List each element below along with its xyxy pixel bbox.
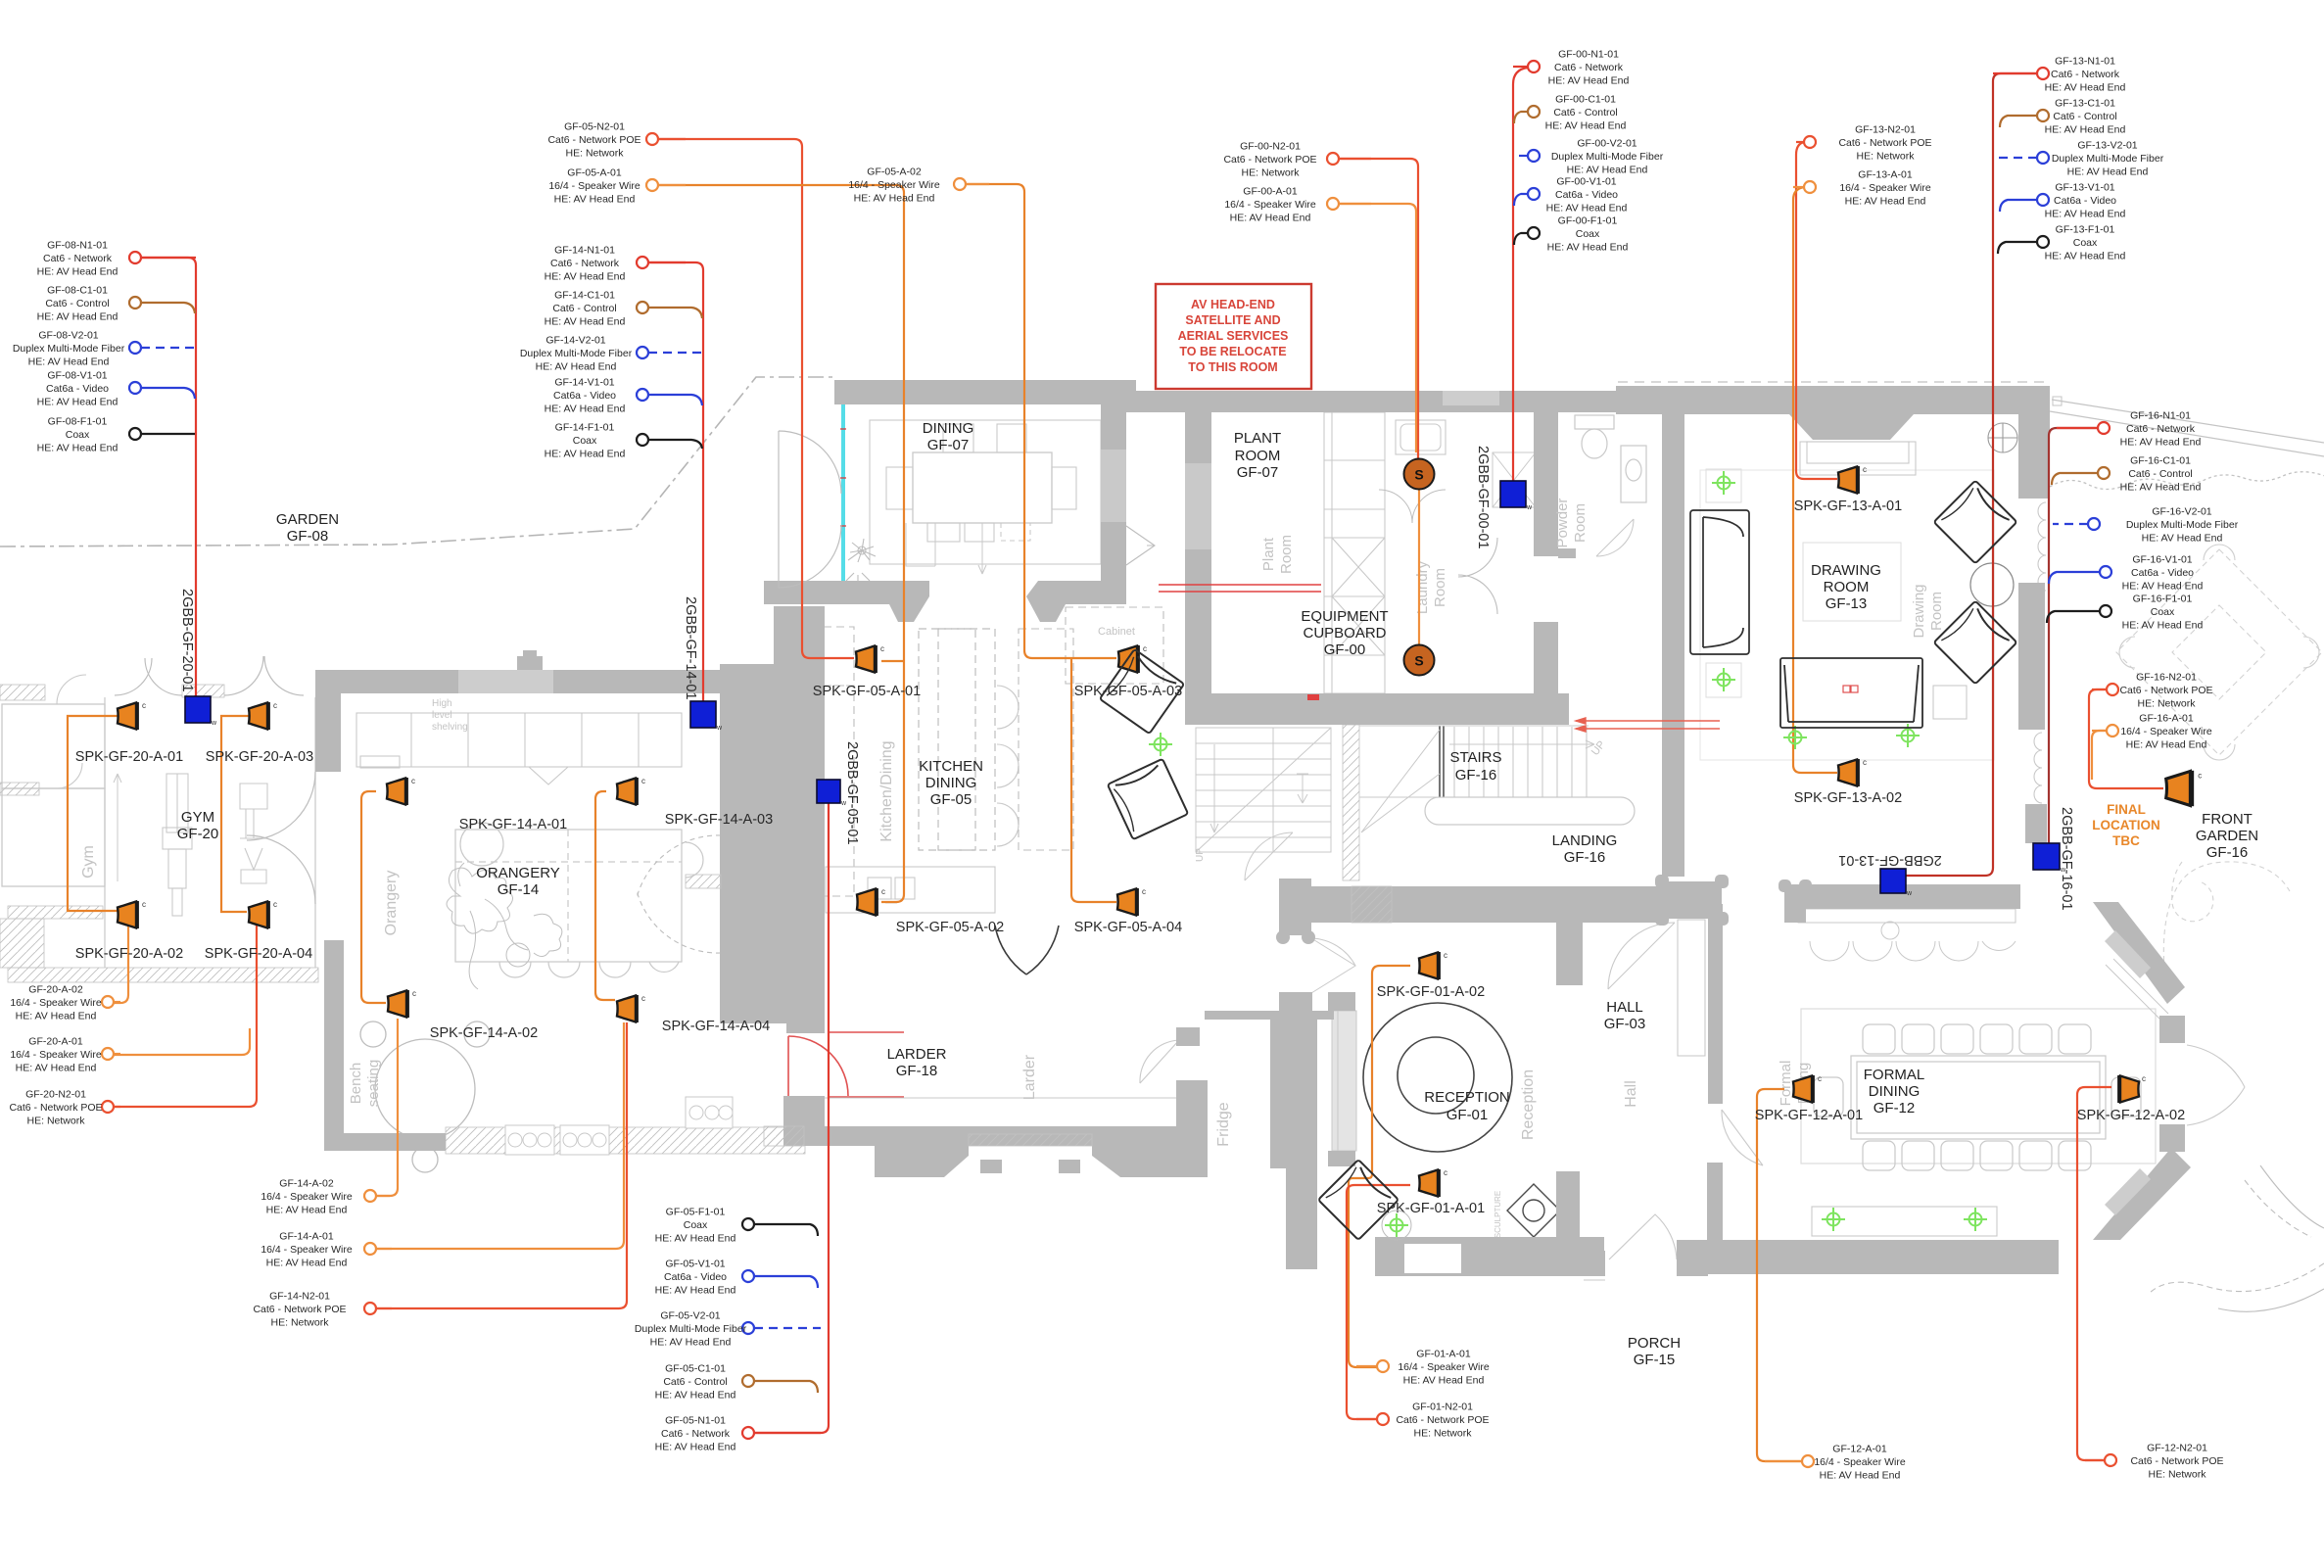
svg-text:GF-16: GF-16 bbox=[1564, 849, 1606, 866]
svg-text:16/4 - Speaker Wire: 16/4 - Speaker Wire bbox=[261, 1191, 353, 1203]
svg-text:HE: AV Head End: HE: AV Head End bbox=[37, 397, 119, 408]
svg-text:Cat6 - Network: Cat6 - Network bbox=[661, 1428, 731, 1440]
svg-text:Laundry: Laundry bbox=[1414, 560, 1431, 614]
svg-text:HE: Network: HE: Network bbox=[1857, 151, 1916, 163]
svg-text:HE: AV Head End: HE: AV Head End bbox=[655, 1442, 736, 1453]
svg-text:Formal: Formal bbox=[1778, 1061, 1794, 1107]
svg-text:level: level bbox=[432, 710, 452, 721]
svg-text:HE: Network: HE: Network bbox=[1414, 1428, 1473, 1440]
svg-text:SPK-GF-05-A-02: SPK-GF-05-A-02 bbox=[896, 920, 1004, 935]
svg-text:SPK-GF-12-A-01: SPK-GF-12-A-01 bbox=[1755, 1108, 1863, 1123]
svg-text:Duplex Multi-Mode Fiber: Duplex Multi-Mode Fiber bbox=[2052, 153, 2164, 165]
svg-text:GF-13-V1-01: GF-13-V1-01 bbox=[2055, 182, 2114, 194]
svg-text:2GBB-GF-14-01: 2GBB-GF-14-01 bbox=[683, 596, 698, 700]
svg-text:Coax: Coax bbox=[573, 435, 597, 447]
svg-text:GF-01: GF-01 bbox=[1447, 1107, 1489, 1123]
svg-text:2GBB-GF-05-01: 2GBB-GF-05-01 bbox=[844, 741, 860, 845]
svg-text:GF-03: GF-03 bbox=[1604, 1016, 1646, 1032]
svg-text:GF-16-F1-01: GF-16-F1-01 bbox=[2133, 594, 2193, 605]
svg-text:HE: Network: HE: Network bbox=[566, 148, 625, 160]
svg-text:Cat6a - Video: Cat6a - Video bbox=[1555, 189, 1618, 201]
svg-text:c: c bbox=[881, 887, 885, 896]
svg-text:ROOM: ROOM bbox=[1235, 448, 1281, 464]
svg-text:Coax: Coax bbox=[1576, 228, 1600, 240]
svg-text:SCULPTURE: SCULPTURE bbox=[1494, 1191, 1502, 1238]
svg-text:c: c bbox=[1142, 887, 1146, 896]
svg-text:GF-00-V1-01: GF-00-V1-01 bbox=[1556, 176, 1616, 188]
svg-text:FORMAL: FORMAL bbox=[1864, 1067, 1925, 1083]
svg-text:Cat6 - Network POE: Cat6 - Network POE bbox=[1396, 1414, 1489, 1426]
svg-text:GF-05-A-02: GF-05-A-02 bbox=[867, 166, 922, 178]
svg-text:GF-13-N2-01: GF-13-N2-01 bbox=[1855, 124, 1916, 136]
svg-text:GF-20-N2-01: GF-20-N2-01 bbox=[25, 1089, 86, 1101]
svg-text:Duplex Multi-Mode Fiber: Duplex Multi-Mode Fiber bbox=[520, 348, 633, 359]
svg-text:Cabinet: Cabinet bbox=[1098, 626, 1135, 638]
svg-text:HE: Network: HE: Network bbox=[2149, 1469, 2207, 1481]
svg-text:HE: AV Head End: HE: AV Head End bbox=[1545, 120, 1627, 132]
svg-text:EQUIPMENT: EQUIPMENT bbox=[1301, 608, 1388, 625]
svg-text:Cat6 - Network: Cat6 - Network bbox=[2051, 69, 2120, 80]
svg-text:HE: AV Head End: HE: AV Head End bbox=[2122, 620, 2204, 632]
svg-text:16/4 - Speaker Wire: 16/4 - Speaker Wire bbox=[1398, 1361, 1490, 1373]
svg-text:HE: AV Head End: HE: AV Head End bbox=[2120, 482, 2202, 494]
svg-text:GF-13-A-01: GF-13-A-01 bbox=[1858, 169, 1913, 181]
svg-text:HE: AV Head End: HE: AV Head End bbox=[1548, 75, 1630, 87]
svg-text:c: c bbox=[641, 994, 645, 1003]
svg-text:GF-01-N2-01: GF-01-N2-01 bbox=[1412, 1402, 1473, 1413]
svg-text:GF-14-N1-01: GF-14-N1-01 bbox=[554, 245, 615, 257]
svg-text:HE: AV Head End: HE: AV Head End bbox=[37, 443, 119, 454]
svg-text:SATELLITE AND: SATELLITE AND bbox=[1185, 313, 1280, 327]
svg-text:LARDER: LARDER bbox=[887, 1046, 947, 1063]
svg-text:Gym: Gym bbox=[80, 845, 97, 879]
svg-text:c: c bbox=[142, 900, 146, 909]
svg-text:seating: seating bbox=[365, 1060, 382, 1107]
svg-text:Cat6a - Video: Cat6a - Video bbox=[553, 390, 616, 402]
svg-text:16/4 - Speaker Wire: 16/4 - Speaker Wire bbox=[10, 997, 102, 1009]
svg-text:GYM: GYM bbox=[181, 809, 214, 826]
svg-text:HALL: HALL bbox=[1606, 999, 1643, 1016]
svg-text:HE: AV Head End: HE: AV Head End bbox=[28, 356, 110, 368]
svg-text:GF-12-N2-01: GF-12-N2-01 bbox=[2147, 1443, 2207, 1454]
svg-text:GF-20: GF-20 bbox=[177, 826, 219, 842]
svg-text:Fridge: Fridge bbox=[1215, 1102, 1232, 1146]
svg-text:GF-00-N1-01: GF-00-N1-01 bbox=[1558, 49, 1619, 61]
svg-text:GF-07: GF-07 bbox=[1237, 464, 1279, 481]
svg-text:GF-13-V2-01: GF-13-V2-01 bbox=[2077, 140, 2137, 152]
svg-text:Plant: Plant bbox=[1260, 537, 1277, 571]
svg-text:SPK-GF-20-A-02: SPK-GF-20-A-02 bbox=[75, 946, 183, 962]
svg-text:GF-14-F1-01: GF-14-F1-01 bbox=[555, 422, 615, 434]
svg-text:HE: AV Head End: HE: AV Head End bbox=[16, 1011, 97, 1022]
svg-text:c: c bbox=[1444, 1168, 1447, 1177]
svg-text:SPK-GF-20-A-01: SPK-GF-20-A-01 bbox=[75, 749, 183, 765]
svg-text:KITCHEN: KITCHEN bbox=[919, 758, 983, 775]
svg-text:FRONT: FRONT bbox=[2202, 811, 2253, 828]
svg-text:GF-00-C1-01: GF-00-C1-01 bbox=[1555, 94, 1616, 106]
svg-text:Room: Room bbox=[1572, 503, 1589, 543]
svg-text:2GBB-GF-00-01: 2GBB-GF-00-01 bbox=[1475, 446, 1491, 549]
svg-text:GF-00-F1-01: GF-00-F1-01 bbox=[1558, 215, 1618, 227]
svg-text:Cat6 - Network POE: Cat6 - Network POE bbox=[2130, 1455, 2223, 1467]
svg-text:GF-05-N1-01: GF-05-N1-01 bbox=[665, 1415, 726, 1427]
svg-text:Cat6 - Network: Cat6 - Network bbox=[2126, 423, 2196, 435]
svg-text:Larder: Larder bbox=[1021, 1054, 1038, 1100]
svg-text:HE: AV Head End: HE: AV Head End bbox=[1845, 196, 1926, 208]
svg-text:HE: AV Head End: HE: AV Head End bbox=[545, 271, 626, 283]
svg-text:16/4 - Speaker Wire: 16/4 - Speaker Wire bbox=[261, 1244, 353, 1256]
svg-text:GF-16-A-01: GF-16-A-01 bbox=[2139, 713, 2194, 725]
svg-text:GF-05-C1-01: GF-05-C1-01 bbox=[665, 1363, 726, 1375]
svg-text:HE: AV Head End: HE: AV Head End bbox=[1230, 213, 1311, 224]
svg-text:w: w bbox=[211, 720, 217, 727]
svg-text:w: w bbox=[716, 725, 723, 732]
svg-text:HE: AV Head End: HE: AV Head End bbox=[1567, 165, 1648, 176]
svg-text:GF-13-N1-01: GF-13-N1-01 bbox=[2055, 56, 2115, 68]
svg-text:ROOM: ROOM bbox=[1824, 579, 1870, 595]
svg-text:GF-08-C1-01: GF-08-C1-01 bbox=[47, 285, 108, 297]
svg-text:GF-00: GF-00 bbox=[1324, 641, 1366, 658]
svg-text:DINING: DINING bbox=[925, 775, 977, 791]
svg-text:HE: AV Head End: HE: AV Head End bbox=[854, 193, 935, 205]
svg-text:Cat6 - Network: Cat6 - Network bbox=[43, 253, 113, 264]
svg-text:2GBB-GF-20-01: 2GBB-GF-20-01 bbox=[179, 589, 195, 692]
svg-text:HE: Network: HE: Network bbox=[27, 1116, 86, 1127]
svg-text:HE: AV Head End: HE: AV Head End bbox=[536, 361, 617, 373]
svg-text:c: c bbox=[880, 644, 884, 653]
svg-text:Powder: Powder bbox=[1554, 499, 1571, 548]
svg-text:Cat6 - Network POE: Cat6 - Network POE bbox=[253, 1304, 346, 1315]
svg-text:c: c bbox=[411, 777, 415, 785]
svg-text:HE: AV Head End: HE: AV Head End bbox=[650, 1337, 732, 1349]
svg-text:16/4 - Speaker Wire: 16/4 - Speaker Wire bbox=[10, 1049, 102, 1061]
svg-text:SPK-GF-05-A-04: SPK-GF-05-A-04 bbox=[1074, 920, 1182, 935]
svg-text:SPK-GF-20-A-04: SPK-GF-20-A-04 bbox=[205, 946, 312, 962]
svg-text:16/4 - Speaker Wire: 16/4 - Speaker Wire bbox=[1814, 1456, 1906, 1468]
svg-text:PLANT: PLANT bbox=[1234, 430, 1281, 447]
svg-text:SPK-GF-14-A-04: SPK-GF-14-A-04 bbox=[662, 1019, 770, 1034]
svg-text:GF-18: GF-18 bbox=[896, 1063, 938, 1079]
svg-text:HE: AV Head End: HE: AV Head End bbox=[545, 404, 626, 415]
svg-text:GF-08-V1-01: GF-08-V1-01 bbox=[47, 370, 107, 382]
svg-text:c: c bbox=[1143, 644, 1147, 653]
svg-text:GF-16-C1-01: GF-16-C1-01 bbox=[2130, 455, 2191, 467]
svg-text:Room: Room bbox=[1928, 592, 1945, 631]
svg-text:GF-05-V1-01: GF-05-V1-01 bbox=[665, 1259, 725, 1270]
svg-text:HE: AV Head End: HE: AV Head End bbox=[545, 449, 626, 460]
svg-text:Cat6 - Control: Cat6 - Control bbox=[2053, 111, 2116, 122]
svg-text:GF-00-N2-01: GF-00-N2-01 bbox=[1240, 141, 1301, 153]
svg-text:GF-00-A-01: GF-00-A-01 bbox=[1243, 186, 1298, 198]
svg-text:HE: AV Head End: HE: AV Head End bbox=[655, 1285, 736, 1297]
svg-text:2GBB-GF-13-01: 2GBB-GF-13-01 bbox=[1838, 852, 1942, 868]
svg-text:SPK-GF-20-A-03: SPK-GF-20-A-03 bbox=[206, 749, 313, 765]
svg-text:SPK-GF-14-A-02: SPK-GF-14-A-02 bbox=[430, 1025, 538, 1041]
svg-text:SPK-GF-01-A-01: SPK-GF-01-A-01 bbox=[1377, 1201, 1485, 1216]
svg-text:SPK-GF-13-A-02: SPK-GF-13-A-02 bbox=[1794, 790, 1902, 806]
svg-text:Bench: Bench bbox=[348, 1063, 364, 1105]
svg-text:HE: AV Head End: HE: AV Head End bbox=[2120, 437, 2202, 449]
svg-text:S: S bbox=[1414, 653, 1423, 669]
svg-text:c: c bbox=[2198, 772, 2202, 781]
svg-text:HE: Network: HE: Network bbox=[1242, 167, 1301, 179]
svg-text:SPK-GF-14-A-03: SPK-GF-14-A-03 bbox=[665, 812, 773, 828]
svg-text:LOCATION: LOCATION bbox=[2092, 818, 2160, 832]
svg-text:CUPBOARD: CUPBOARD bbox=[1303, 625, 1386, 641]
svg-text:Cat6 - Control: Cat6 - Control bbox=[552, 303, 616, 314]
svg-text:HE: AV Head End: HE: AV Head End bbox=[2067, 166, 2149, 178]
svg-text:GF-14: GF-14 bbox=[498, 881, 540, 898]
svg-text:TO BE RELOCATE: TO BE RELOCATE bbox=[1179, 345, 1286, 358]
svg-text:Cat6 - Network POE: Cat6 - Network POE bbox=[9, 1102, 102, 1114]
svg-text:Hall: Hall bbox=[1623, 1080, 1639, 1108]
svg-text:GF-05-F1-01: GF-05-F1-01 bbox=[666, 1207, 726, 1218]
svg-text:GF-14-A-01: GF-14-A-01 bbox=[279, 1231, 334, 1243]
svg-text:HE: Network: HE: Network bbox=[2138, 698, 2197, 710]
svg-text:Cat6 - Network POE: Cat6 - Network POE bbox=[1838, 137, 1931, 149]
svg-text:AERIAL SERVICES: AERIAL SERVICES bbox=[1178, 329, 1289, 343]
svg-text:HE: AV Head End: HE: AV Head End bbox=[655, 1233, 736, 1245]
svg-text:Duplex Multi-Mode Fiber: Duplex Multi-Mode Fiber bbox=[635, 1323, 747, 1335]
svg-text:HE: AV Head End: HE: AV Head End bbox=[37, 266, 119, 278]
svg-text:UP: UP bbox=[1195, 848, 1206, 862]
svg-text:c: c bbox=[142, 701, 146, 710]
svg-text:GF-16: GF-16 bbox=[1455, 767, 1497, 784]
svg-text:GF-05-A-01: GF-05-A-01 bbox=[567, 167, 622, 179]
svg-text:Duplex Multi-Mode Fiber: Duplex Multi-Mode Fiber bbox=[2126, 519, 2239, 531]
svg-text:GF-14-A-02: GF-14-A-02 bbox=[279, 1178, 334, 1190]
svg-text:SPK-GF-12-A-02: SPK-GF-12-A-02 bbox=[2077, 1108, 2185, 1123]
svg-text:16/4 - Speaker Wire: 16/4 - Speaker Wire bbox=[848, 179, 940, 191]
svg-text:Cat6 - Control: Cat6 - Control bbox=[663, 1376, 727, 1388]
svg-text:GARDEN: GARDEN bbox=[2196, 828, 2258, 844]
svg-text:Drawing: Drawing bbox=[1911, 584, 1927, 638]
svg-text:STAIRS: STAIRS bbox=[1449, 749, 1501, 766]
svg-text:GF-07: GF-07 bbox=[927, 437, 970, 453]
svg-text:Cat6 - Network POE: Cat6 - Network POE bbox=[547, 134, 640, 146]
svg-text:LANDING: LANDING bbox=[1552, 832, 1618, 849]
svg-text:GF-16-V1-01: GF-16-V1-01 bbox=[2132, 554, 2192, 566]
svg-text:SPK-GF-14-A-01: SPK-GF-14-A-01 bbox=[459, 817, 567, 832]
svg-text:HE: AV Head End: HE: AV Head End bbox=[16, 1063, 97, 1074]
svg-text:SPK-GF-05-A-01: SPK-GF-05-A-01 bbox=[813, 684, 921, 699]
svg-text:GARDEN: GARDEN bbox=[276, 511, 339, 528]
svg-text:GF-08: GF-08 bbox=[287, 528, 329, 545]
svg-text:Cat6 - Network POE: Cat6 - Network POE bbox=[1223, 154, 1316, 166]
svg-text:Cat6 - Network: Cat6 - Network bbox=[550, 258, 620, 269]
svg-text:GF-13-F1-01: GF-13-F1-01 bbox=[2056, 224, 2115, 236]
svg-text:Cat6a - Video: Cat6a - Video bbox=[46, 383, 109, 395]
svg-text:DRAWING: DRAWING bbox=[1811, 562, 1881, 579]
svg-text:HE: AV Head End: HE: AV Head End bbox=[655, 1390, 736, 1402]
svg-text:GF-16-N1-01: GF-16-N1-01 bbox=[2130, 410, 2191, 422]
svg-text:shelving: shelving bbox=[432, 722, 468, 733]
svg-text:HE: AV Head End: HE: AV Head End bbox=[1403, 1375, 1485, 1387]
svg-text:S: S bbox=[1414, 467, 1423, 483]
svg-text:TO THIS ROOM: TO THIS ROOM bbox=[1188, 360, 1277, 374]
svg-text:HE: AV Head End: HE: AV Head End bbox=[2142, 533, 2223, 545]
svg-text:HE: AV Head End: HE: AV Head End bbox=[1547, 242, 1629, 254]
svg-text:c: c bbox=[641, 777, 645, 785]
svg-text:w: w bbox=[1526, 504, 1533, 511]
svg-text:GF-20-A-02: GF-20-A-02 bbox=[28, 984, 83, 996]
svg-text:RECEPTION: RECEPTION bbox=[1424, 1089, 1510, 1106]
svg-text:GF-05: GF-05 bbox=[930, 791, 972, 808]
svg-text:GF-08-F1-01: GF-08-F1-01 bbox=[48, 416, 108, 428]
svg-text:TBC: TBC bbox=[2112, 833, 2140, 848]
svg-text:GF-05-N2-01: GF-05-N2-01 bbox=[564, 121, 625, 133]
svg-text:PORCH: PORCH bbox=[1628, 1335, 1681, 1352]
svg-text:Cat6a - Video: Cat6a - Video bbox=[2054, 195, 2116, 207]
svg-text:Kitchen/Dining: Kitchen/Dining bbox=[878, 740, 895, 841]
svg-text:HE: AV Head End: HE: AV Head End bbox=[266, 1205, 348, 1216]
svg-text:c: c bbox=[1863, 465, 1867, 474]
svg-text:Cat6a - Video: Cat6a - Video bbox=[2131, 567, 2194, 579]
svg-text:GF-13: GF-13 bbox=[1826, 595, 1868, 612]
svg-text:Duplex Multi-Mode Fiber: Duplex Multi-Mode Fiber bbox=[1551, 151, 1664, 163]
svg-text:GF-16: GF-16 bbox=[2206, 844, 2249, 861]
svg-text:ORANGERY: ORANGERY bbox=[476, 865, 560, 881]
svg-text:SPK-GF-05-A-03: SPK-GF-05-A-03 bbox=[1074, 684, 1182, 699]
svg-text:Reception: Reception bbox=[1520, 1069, 1537, 1140]
svg-text:HE: AV Head End: HE: AV Head End bbox=[1546, 203, 1628, 214]
svg-text:Coax: Coax bbox=[2151, 606, 2175, 618]
svg-text:SPK-GF-01-A-02: SPK-GF-01-A-02 bbox=[1377, 984, 1485, 1000]
svg-text:High: High bbox=[432, 698, 452, 709]
svg-text:16/4 - Speaker Wire: 16/4 - Speaker Wire bbox=[1224, 199, 1316, 211]
svg-text:HE: AV Head End: HE: AV Head End bbox=[2045, 82, 2126, 94]
svg-text:GF-08-V2-01: GF-08-V2-01 bbox=[38, 330, 98, 342]
svg-text:HE: AV Head End: HE: AV Head End bbox=[2045, 124, 2126, 136]
svg-text:DINING: DINING bbox=[1869, 1083, 1921, 1100]
svg-text:GF-01-A-01: GF-01-A-01 bbox=[1416, 1349, 1471, 1360]
svg-text:HE: AV Head End: HE: AV Head End bbox=[37, 311, 119, 323]
svg-text:AV HEAD-END: AV HEAD-END bbox=[1191, 298, 1275, 311]
svg-text:c: c bbox=[412, 989, 416, 998]
svg-text:16/4 - Speaker Wire: 16/4 - Speaker Wire bbox=[2120, 726, 2212, 737]
svg-text:FINAL: FINAL bbox=[2107, 802, 2146, 817]
svg-text:GF-15: GF-15 bbox=[1634, 1352, 1676, 1368]
svg-text:GF-16-N2-01: GF-16-N2-01 bbox=[2136, 672, 2197, 684]
svg-text:Room: Room bbox=[1278, 535, 1295, 574]
svg-text:c: c bbox=[2142, 1074, 2146, 1083]
svg-text:HE: AV Head End: HE: AV Head End bbox=[2126, 739, 2207, 751]
svg-text:GF-13-C1-01: GF-13-C1-01 bbox=[2055, 98, 2115, 110]
svg-text:Coax: Coax bbox=[684, 1219, 708, 1231]
svg-text:c: c bbox=[1863, 758, 1867, 767]
svg-text:HE: AV Head End: HE: AV Head End bbox=[2045, 251, 2126, 262]
svg-text:GF-08-N1-01: GF-08-N1-01 bbox=[47, 240, 108, 252]
svg-text:Room: Room bbox=[1432, 568, 1448, 607]
svg-text:GF-00-V2-01: GF-00-V2-01 bbox=[1577, 138, 1636, 150]
svg-text:DINING: DINING bbox=[923, 420, 974, 437]
svg-text:Cat6 - Control: Cat6 - Control bbox=[2128, 468, 2192, 480]
svg-text:GF-12: GF-12 bbox=[1873, 1100, 1916, 1117]
svg-text:HE: AV Head End: HE: AV Head End bbox=[266, 1258, 348, 1269]
svg-text:GF-05-V2-01: GF-05-V2-01 bbox=[660, 1310, 720, 1322]
svg-text:Duplex Multi-Mode Fiber: Duplex Multi-Mode Fiber bbox=[13, 343, 125, 355]
svg-text:Coax: Coax bbox=[66, 429, 90, 441]
svg-text:GF-14-V2-01: GF-14-V2-01 bbox=[545, 335, 605, 347]
svg-text:GF-20-A-01: GF-20-A-01 bbox=[28, 1036, 83, 1048]
svg-text:Cat6 - Control: Cat6 - Control bbox=[45, 298, 109, 309]
svg-text:SPK-GF-13-A-01: SPK-GF-13-A-01 bbox=[1794, 499, 1902, 514]
svg-text:HE: AV Head End: HE: AV Head End bbox=[2045, 209, 2126, 220]
svg-text:HE: Network: HE: Network bbox=[271, 1317, 330, 1329]
svg-text:c: c bbox=[1818, 1074, 1822, 1083]
svg-text:GF-12-A-01: GF-12-A-01 bbox=[1832, 1444, 1887, 1455]
svg-text:16/4 - Speaker Wire: 16/4 - Speaker Wire bbox=[548, 180, 640, 192]
svg-text:c: c bbox=[273, 900, 277, 909]
svg-text:HE: AV Head End: HE: AV Head End bbox=[554, 194, 636, 206]
svg-text:HE: AV Head End: HE: AV Head End bbox=[545, 316, 626, 328]
svg-text:c: c bbox=[273, 701, 277, 710]
svg-text:GF-16-V2-01: GF-16-V2-01 bbox=[2152, 506, 2211, 518]
svg-text:Cat6 - Network POE: Cat6 - Network POE bbox=[2119, 685, 2212, 696]
svg-text:GF-14-N2-01: GF-14-N2-01 bbox=[269, 1291, 330, 1303]
svg-text:GF-14-V1-01: GF-14-V1-01 bbox=[554, 377, 614, 389]
svg-text:16/4 - Speaker Wire: 16/4 - Speaker Wire bbox=[1839, 182, 1931, 194]
svg-text:Cat6a - Video: Cat6a - Video bbox=[664, 1271, 727, 1283]
svg-text:Orangery: Orangery bbox=[383, 871, 400, 936]
svg-text:c: c bbox=[1444, 951, 1447, 960]
svg-text:HE: AV Head End: HE: AV Head End bbox=[2122, 581, 2204, 593]
svg-text:HE: AV Head End: HE: AV Head End bbox=[1820, 1470, 1901, 1482]
svg-text:w: w bbox=[1906, 890, 1913, 897]
svg-text:Cat6 - Control: Cat6 - Control bbox=[1553, 107, 1617, 119]
svg-text:Cat6 - Network: Cat6 - Network bbox=[1554, 62, 1624, 73]
svg-text:2GBB-GF-16-01: 2GBB-GF-16-01 bbox=[2059, 807, 2074, 911]
svg-text:Coax: Coax bbox=[2073, 237, 2098, 249]
svg-text:GF-14-C1-01: GF-14-C1-01 bbox=[554, 290, 615, 302]
